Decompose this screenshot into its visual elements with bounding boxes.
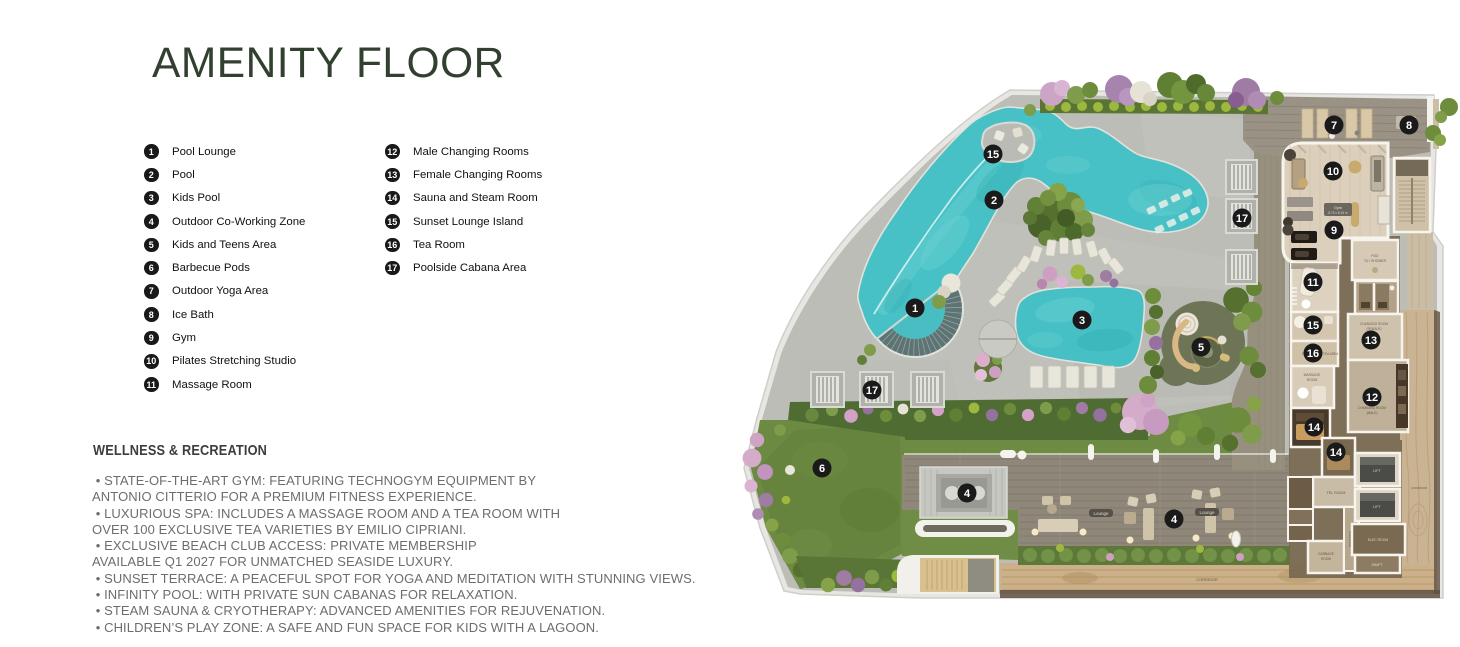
svg-text:MASSAGE: MASSAGE (1304, 373, 1322, 377)
svg-text:TU / SHOWER: TU / SHOWER (1364, 259, 1387, 263)
svg-text:SHAFT: SHAFT (1371, 563, 1382, 567)
svg-text:15: 15 (1307, 320, 1319, 332)
svg-text:POD: POD (1371, 254, 1379, 258)
svg-text:12: 12 (1366, 392, 1378, 404)
svg-text:CORRIDOR: CORRIDOR (1196, 577, 1218, 582)
svg-text:14: 14 (1308, 422, 1321, 434)
svg-text:15: 15 (987, 149, 999, 161)
svg-text:7: 7 (1331, 120, 1337, 132)
svg-text:9: 9 (1331, 225, 1337, 237)
svg-text:17: 17 (1236, 213, 1248, 225)
svg-text:TEL ROOM: TEL ROOM (1327, 491, 1346, 495)
svg-text:ROOM: ROOM (1321, 557, 1331, 561)
svg-text:LIFT: LIFT (1373, 505, 1381, 509)
svg-text:CHANGING ROOM: CHANGING ROOM (1358, 406, 1386, 410)
svg-text:10: 10 (1327, 166, 1339, 178)
svg-text:8: 8 (1406, 120, 1412, 132)
svg-text:2: 2 (991, 195, 997, 207)
svg-text:4: 4 (1171, 514, 1178, 526)
svg-text:17: 17 (866, 385, 878, 397)
svg-text:Lounge: Lounge (1199, 510, 1215, 515)
svg-text:8.75 x 8.15 m: 8.75 x 8.15 m (1328, 211, 1348, 215)
svg-text:Gym: Gym (1334, 206, 1342, 210)
svg-text:14: 14 (1330, 447, 1343, 459)
svg-text:3: 3 (1079, 315, 1085, 327)
svg-text:GARBAGE: GARBAGE (1318, 552, 1334, 556)
svg-text:1: 1 (912, 303, 918, 315)
svg-text:TEA AREA: TEA AREA (1323, 352, 1339, 356)
svg-text:6: 6 (819, 463, 825, 475)
svg-text:4: 4 (964, 488, 971, 500)
svg-text:CORRIDOR: CORRIDOR (1411, 486, 1428, 490)
svg-text:5: 5 (1198, 342, 1204, 354)
svg-text:Lounge: Lounge (1093, 511, 1109, 516)
svg-text:ROOM: ROOM (1307, 378, 1318, 382)
svg-text:CHANGING ROOM: CHANGING ROOM (1360, 322, 1388, 326)
svg-text:(MALE): (MALE) (1367, 411, 1378, 415)
svg-text:11: 11 (1307, 277, 1319, 289)
svg-text:13: 13 (1365, 335, 1377, 347)
svg-text:ELEC ROOM: ELEC ROOM (1368, 538, 1389, 542)
svg-text:LIFT: LIFT (1373, 469, 1381, 473)
svg-text:16: 16 (1307, 348, 1319, 360)
svg-text:(FEMALE): (FEMALE) (1367, 327, 1382, 331)
